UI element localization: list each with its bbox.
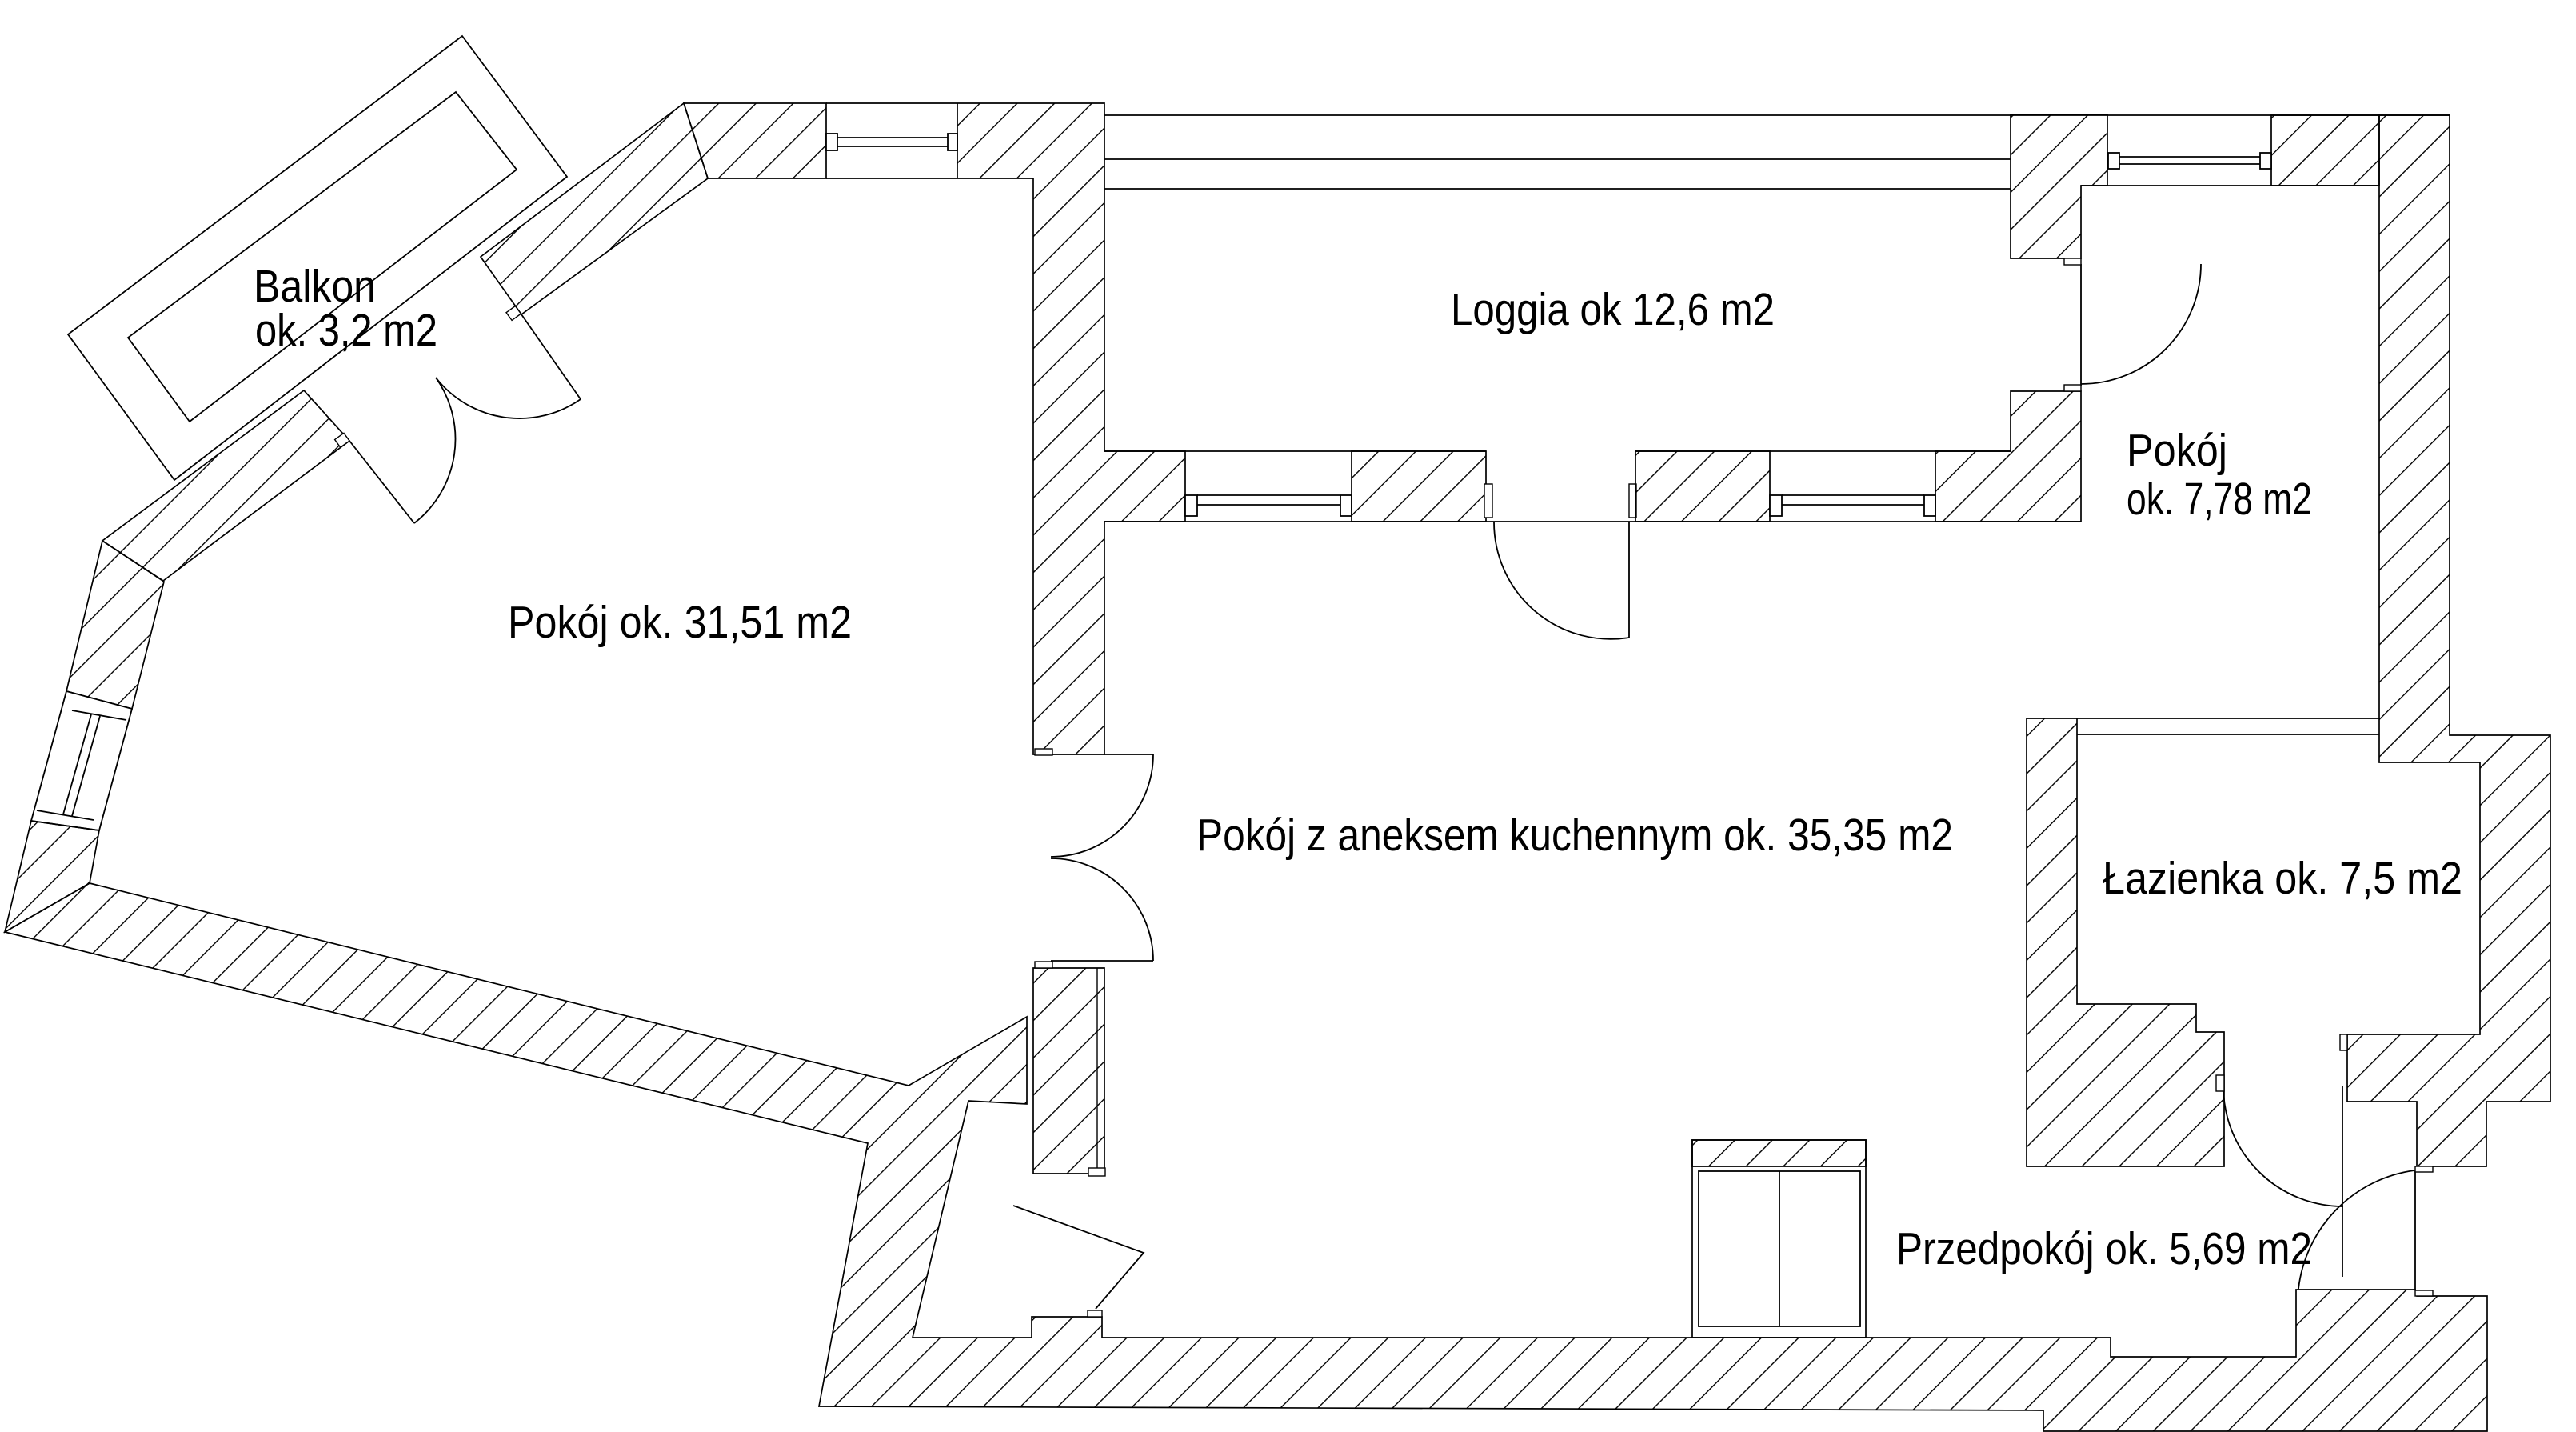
svg-text:Pokój: Pokój bbox=[2127, 425, 2227, 476]
svg-text:ok. 7,78 m2: ok. 7,78 m2 bbox=[2127, 474, 2312, 525]
svg-text:Pokój z aneksem kuchennym ok.: Pokój z aneksem kuchennym ok. 35,35 m2 bbox=[1196, 810, 1953, 861]
svg-text:Przedpokój ok. 5,69 m2: Przedpokój ok. 5,69 m2 bbox=[1896, 1223, 2312, 1274]
svg-text:Loggia ok 12,6 m2: Loggia ok 12,6 m2 bbox=[1451, 284, 1775, 335]
svg-text:ok. 3,2 m2: ok. 3,2 m2 bbox=[255, 305, 437, 356]
svg-text:Łazienka ok. 7,5 m2: Łazienka ok. 7,5 m2 bbox=[2103, 853, 2462, 904]
svg-text:Pokój ok. 31,51 m2: Pokój ok. 31,51 m2 bbox=[508, 597, 852, 648]
